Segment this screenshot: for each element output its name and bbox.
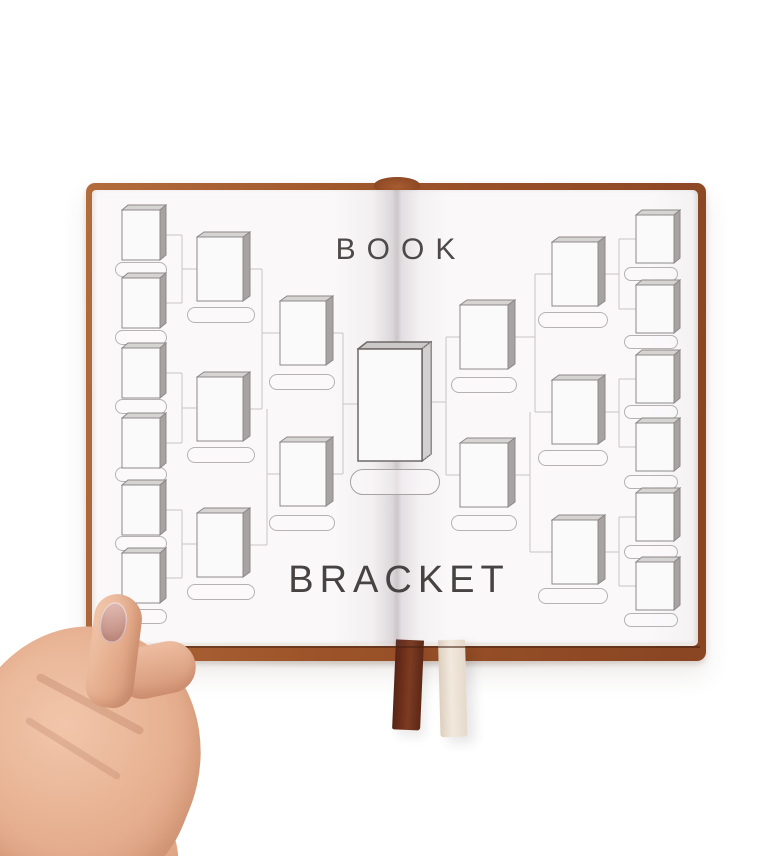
- book-illustration: [635, 349, 681, 409]
- book-illustration: [635, 487, 681, 547]
- book-illustration: [121, 204, 167, 266]
- bracket-slot-field: [269, 374, 335, 390]
- book-illustration: [635, 556, 681, 616]
- book-illustration: [121, 412, 167, 474]
- bracket-slot-field: [269, 515, 335, 531]
- page-title-bracket: BRACKET: [288, 559, 509, 602]
- book-illustration: [459, 437, 516, 513]
- bracket-slot-field: [538, 312, 608, 328]
- winner-book-illustration: [357, 341, 432, 467]
- bracket-slot-field: [538, 450, 608, 466]
- book-illustration: [551, 236, 606, 312]
- bracket-slot-field: [187, 307, 255, 323]
- bracket-slot-field: [187, 584, 255, 600]
- bracket-slot-field: [538, 588, 608, 604]
- bracket-slot-field: [451, 377, 517, 393]
- winner-slot-field: [350, 469, 440, 495]
- book-illustration: [196, 231, 251, 307]
- book-illustration: [121, 479, 167, 541]
- book-illustration: [279, 295, 334, 371]
- bracket-slot-field: [187, 447, 255, 463]
- book-illustration: [551, 374, 606, 450]
- page-title-book: BOOK: [336, 233, 467, 267]
- book-illustration: [635, 209, 681, 269]
- book-illustration: [635, 279, 681, 339]
- book-illustration: [196, 371, 251, 447]
- book-illustration: [459, 299, 516, 375]
- book-illustration: [635, 417, 681, 477]
- bracket-slot-field: [451, 515, 517, 531]
- book-illustration: [279, 436, 334, 512]
- brown-ribbon-bookmark: [392, 639, 424, 730]
- book-illustration: [196, 507, 251, 583]
- cream-ribbon-bookmark: [438, 640, 468, 738]
- book-illustration: [121, 272, 167, 334]
- book-illustration: [551, 514, 606, 590]
- book-illustration: [121, 342, 167, 404]
- photo-book-bracket-journal: BOOK BRACKET: [0, 0, 768, 856]
